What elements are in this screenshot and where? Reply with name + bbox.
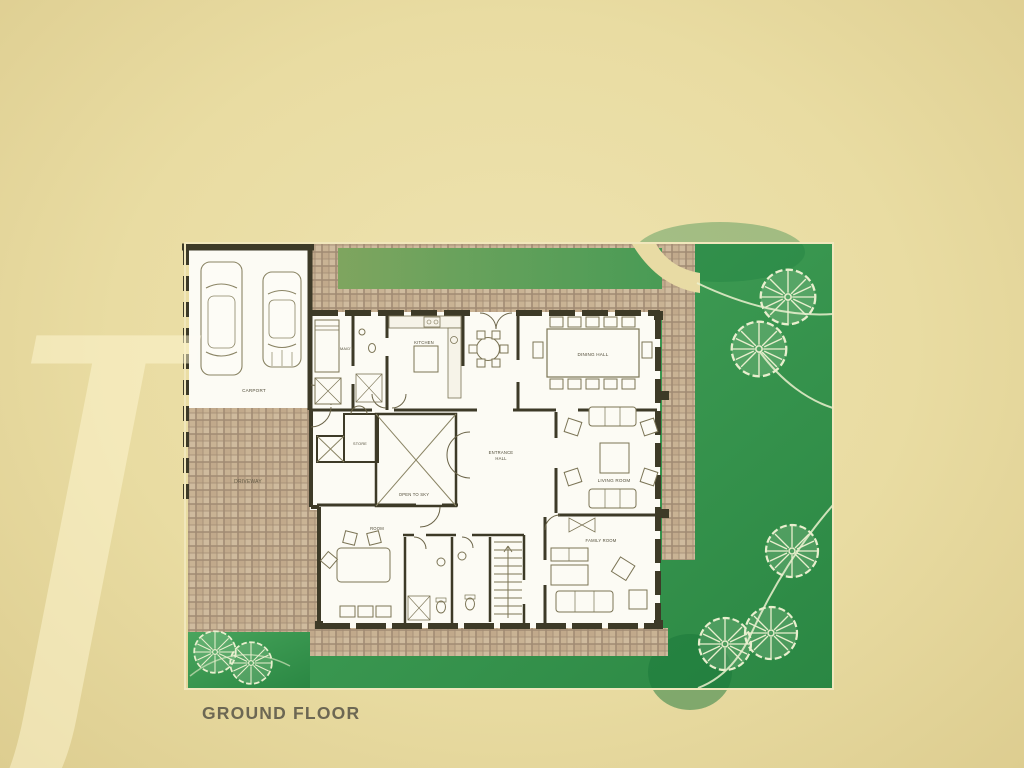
label-kitchen: KITCHEN: [414, 340, 434, 345]
floorplan-page: DRIVEWAY: [0, 0, 1024, 768]
walkway-bottom: [310, 628, 668, 656]
tree-icon: [699, 618, 751, 670]
maid-room-furniture: [315, 320, 341, 404]
label-carport: CARPORT: [242, 388, 266, 393]
label-open-to-sky: OPEN TO SKY: [399, 492, 429, 497]
patio-right: [662, 318, 695, 560]
car: [201, 262, 242, 375]
site-plan: DRIVEWAY: [0, 0, 1024, 768]
tree-icon: [732, 322, 787, 377]
label-store: STORE: [353, 442, 367, 446]
tree-icon: [745, 607, 797, 659]
label-entrance-hall-2: HALL: [495, 456, 507, 461]
label-dining-hall: DINING HALL: [577, 352, 608, 357]
label-family-room: FAMILY ROOM: [586, 538, 617, 543]
lawn-top-strip: [338, 248, 662, 289]
page-title: GROUND FLOOR: [202, 703, 360, 724]
label-entrance-hall: ENTRANCE: [489, 450, 514, 455]
label-room: ROOM: [370, 526, 384, 531]
tree-icon: [766, 525, 818, 577]
car: [263, 272, 301, 367]
label-driveway: DRIVEWAY: [234, 479, 262, 485]
tree-icon: [230, 642, 272, 684]
tree-icon: [194, 631, 236, 673]
tree-icon: [761, 270, 816, 325]
driveway: [188, 408, 318, 632]
label-maids: MAID'S: [340, 347, 354, 351]
label-living-room: LIVING ROOM: [598, 478, 631, 483]
